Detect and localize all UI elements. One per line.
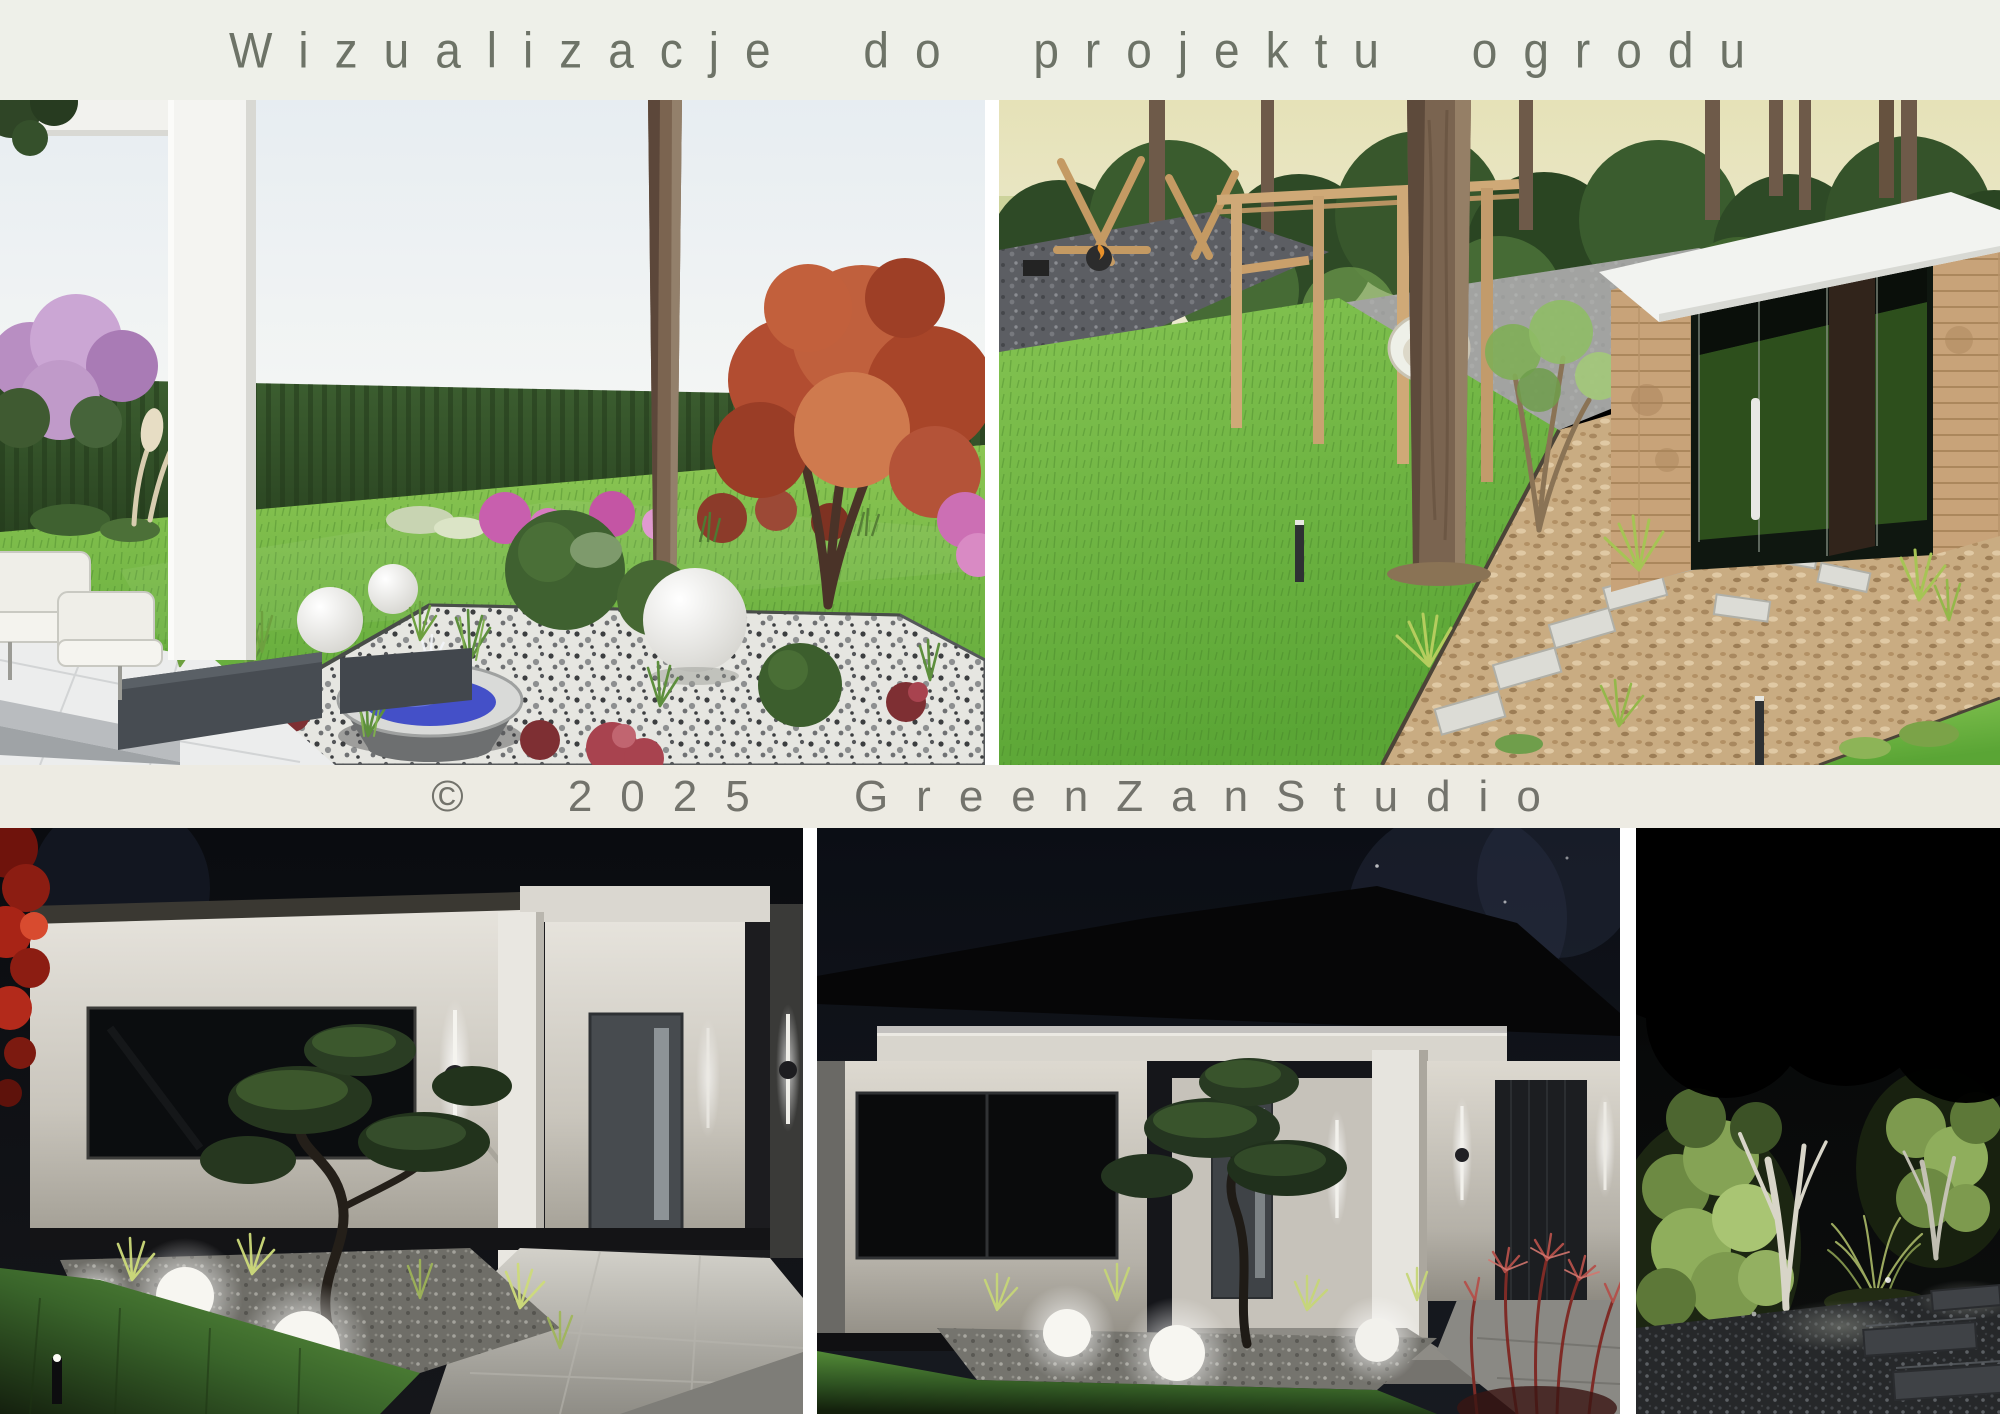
render-day-cube-garden: [999, 100, 2000, 765]
garden-visualizations-poster: Wizualizacje do projektu ogrodu: [0, 0, 2000, 1414]
poster-title: Wizualizacje do projektu ogrodu: [229, 21, 1771, 79]
render-day-cube-garden-graphic: [999, 100, 2000, 765]
render-day-fountain-garden: [0, 100, 985, 765]
copyright-band: © 2025 GreenZanStudio: [0, 765, 2000, 828]
render-night-uplit-garden-graphic: [1636, 828, 2000, 1414]
copyright-text: © 2025 GreenZanStudio: [431, 772, 1569, 822]
render-night-uplit-garden: [1636, 828, 2000, 1414]
render-night-entrance: [0, 828, 803, 1414]
render-night-house-graphic: [817, 828, 1620, 1414]
render-day-fountain-garden-graphic: [0, 100, 985, 765]
title-band: Wizualizacje do projektu ogrodu: [0, 0, 2000, 100]
render-night-house: [817, 828, 1620, 1414]
render-night-entrance-graphic: [0, 828, 803, 1414]
